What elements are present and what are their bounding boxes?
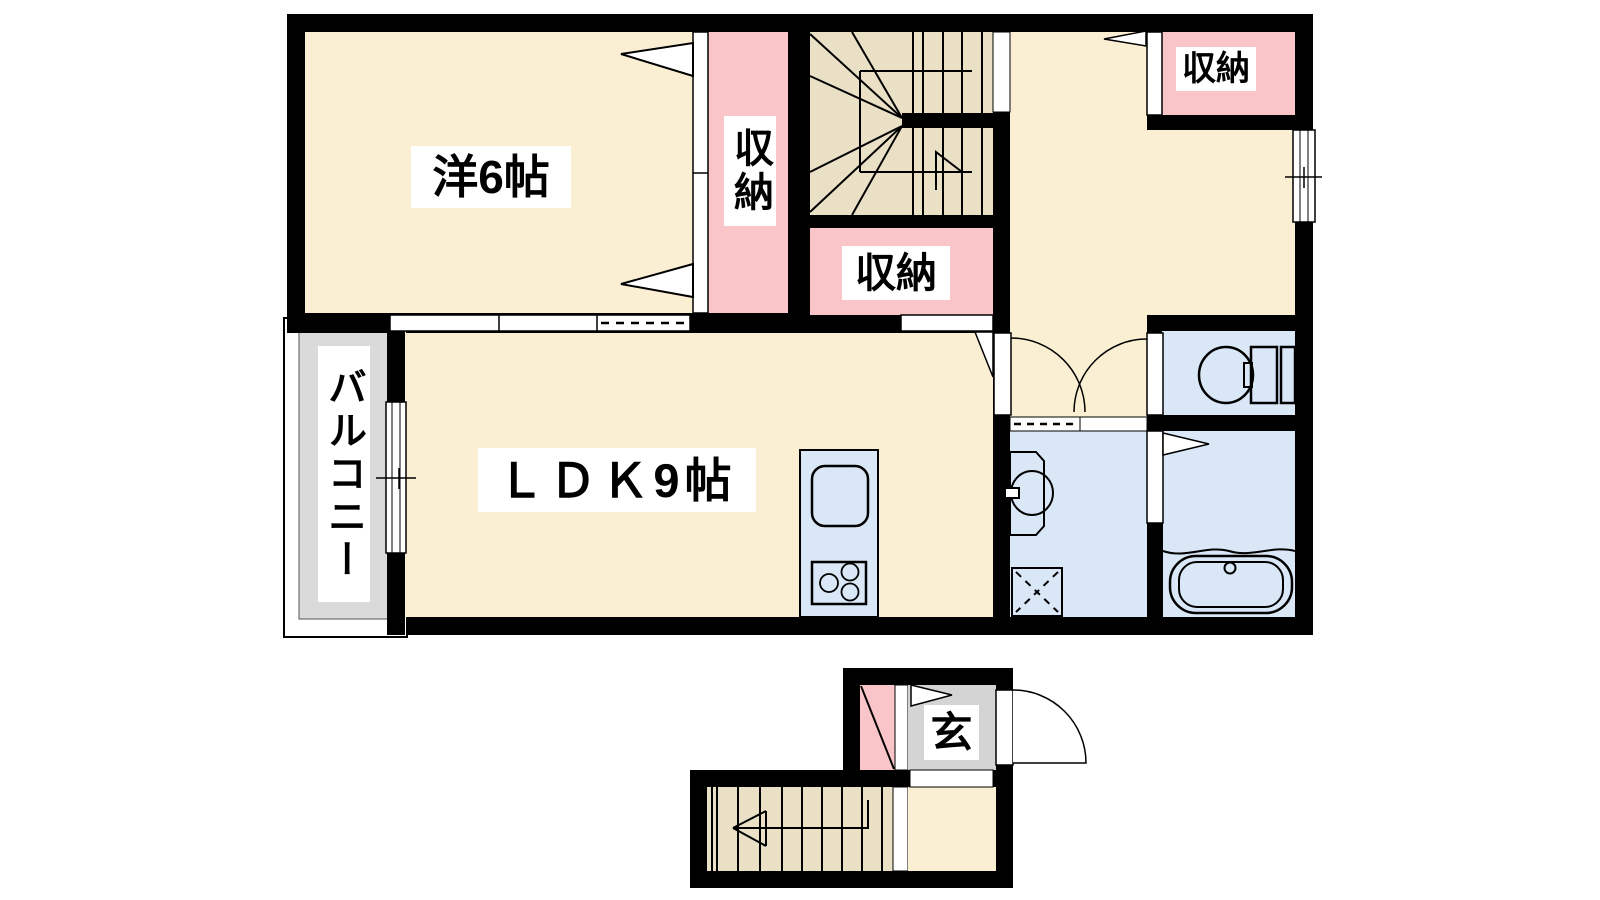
room-label-balcony: バルコニー [318, 346, 370, 602]
hall-east-floor [1147, 130, 1295, 315]
stair-stub-wall [902, 113, 1010, 128]
sliding-partition [390, 315, 690, 331]
room-label-ldk: ＬＤＫ9帖 [478, 448, 756, 512]
stair-opening [993, 32, 1010, 112]
toilet-door [1147, 333, 1163, 415]
room-label-entrance: 玄 [924, 705, 979, 760]
front-door [996, 690, 1013, 765]
front-door-swing-arc [1013, 690, 1086, 763]
wall-partition-left [287, 313, 403, 333]
room-label-western-room: 洋6帖 [411, 146, 571, 208]
washroom-floor [1010, 431, 1147, 617]
floor-plan: 洋6帖 ＬＤＫ9帖 収納 収納 収納 バルコニー 玄 [0, 0, 1600, 900]
room-label-closet-northeast: 収納 [1176, 47, 1256, 91]
kitchen-counter [800, 450, 878, 617]
bathroom-door [1147, 431, 1163, 523]
ldk-hall-door [994, 333, 1011, 415]
genkan-step-band [910, 770, 993, 787]
hallway-floor [1010, 32, 1147, 417]
room-label-closet-west: 収納 [724, 116, 776, 226]
ldk-west-wall-lower [387, 553, 405, 635]
closet-center-door [901, 315, 993, 331]
entry-hall-floor [908, 787, 996, 871]
floor-plan-drawing [0, 0, 1600, 900]
entrance-block [690, 668, 1086, 888]
bathroom-floor [1163, 431, 1295, 617]
closet-northeast-door [1147, 32, 1162, 115]
room-label-closet-center: 収納 [842, 246, 950, 300]
